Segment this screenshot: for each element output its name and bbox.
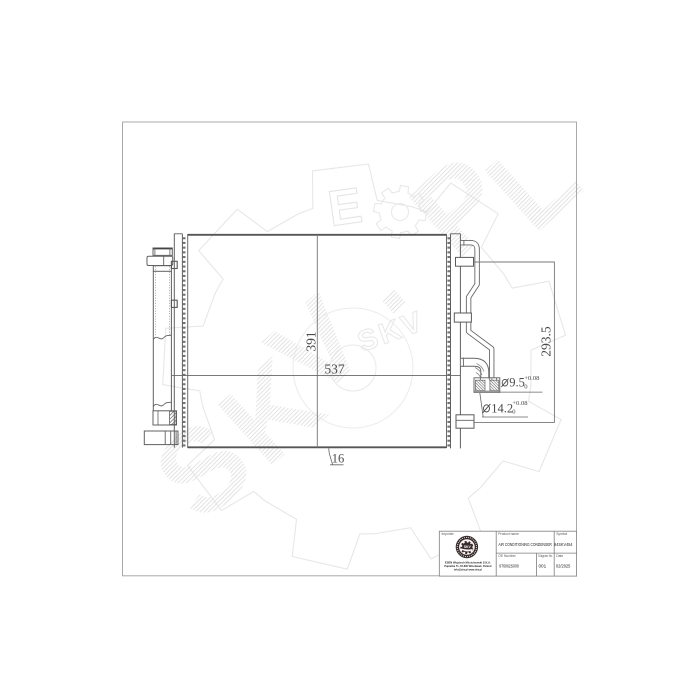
svg-text:Product name: Product name [498,532,519,536]
svg-text:SKV: SKV [464,545,472,549]
svg-text:Symbol: Symbol [556,532,567,536]
svg-text:+0.08: +0.08 [524,375,540,382]
svg-text:info@skv.pl www.skv.pl: info@skv.pl www.skv.pl [454,567,482,571]
svg-text:+0.08: +0.08 [512,400,528,407]
svg-text:0: 0 [524,383,528,390]
svg-text:537: 537 [324,361,345,376]
svg-text:02/2025: 02/2025 [556,564,571,569]
svg-text:Importer: Importer [442,532,455,536]
svg-text:Date: Date [556,554,563,558]
svg-text:9.5: 9.5 [509,376,525,390]
svg-text:94SKV454: 94SKV454 [554,542,573,547]
svg-text:OE Number: OE Number [498,554,516,558]
svg-text:16: 16 [332,451,345,465]
svg-text:AIR CONDITIONING CONDENSER: AIR CONDITIONING CONDENSER [498,542,552,547]
svg-text:293.5: 293.5 [539,326,554,357]
svg-text:14.2: 14.2 [491,402,513,416]
svg-text:Diagram No.: Diagram No. [538,554,553,558]
svg-text:0: 0 [512,409,516,416]
svg-text:001: 001 [539,564,547,569]
svg-text:391: 391 [304,331,319,351]
svg-text:976062S000: 976062S000 [499,564,519,569]
